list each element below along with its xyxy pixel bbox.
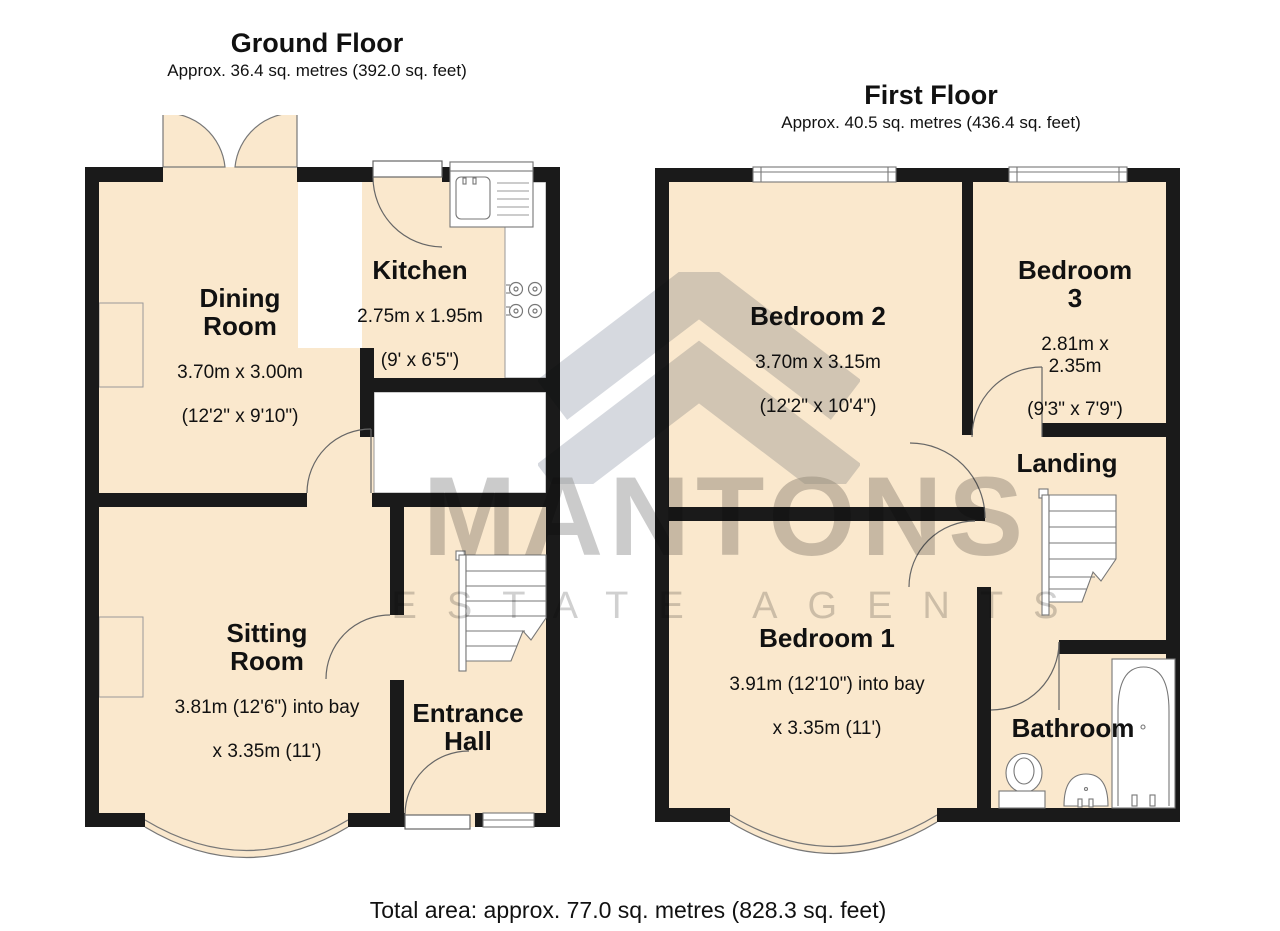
hall-window [483, 813, 534, 827]
room-name: Bedroom 1 [729, 625, 924, 653]
room-label-kitchen: Kitchen 2.75m x 1.95m (9' x 6'5") [357, 257, 483, 394]
room-dim-imperial: (9' x 6'5") [357, 350, 483, 372]
room-name: Bedroom 2 [750, 303, 886, 331]
room-label-bedroom1: Bedroom 1 3.91m (12'10") into bay x 3.35… [729, 625, 924, 762]
room-dim-metric: 3.81m (12'6") into bay [175, 697, 360, 719]
room-dim-metric: 2.81m x 2.35m [1018, 334, 1132, 378]
room-label-entrance-hall: Entrance Hall [412, 700, 523, 755]
ground-floor-plan: Dining Room 3.70m x 3.00m (12'2" x 9'10"… [85, 115, 560, 890]
room-name: Dining Room [177, 285, 303, 340]
room-name: Bedroom 3 [1018, 257, 1132, 312]
room-label-dining-room: Dining Room 3.70m x 3.00m (12'2" x 9'10"… [177, 285, 303, 449]
french-doors [163, 115, 297, 167]
first-floor-plan: Bedroom 2 3.70m x 3.15m (12'2" x 10'4") … [655, 165, 1180, 880]
first-floor-title: First Floor [864, 80, 998, 111]
room-dim-metric: 3.91m (12'10") into bay [729, 674, 924, 696]
room-dims: 2.75m x 1.95m (9' x 6'5") [357, 285, 483, 394]
room-dim-imperial: (12'2" x 10'4") [750, 396, 886, 418]
room-name: Kitchen [357, 257, 483, 285]
room-dim-metric: 3.70m x 3.15m [750, 352, 886, 374]
first-floor-area: Approx. 40.5 sq. metres (436.4 sq. feet) [781, 113, 1081, 133]
room-name: Sitting Room [175, 620, 360, 675]
room-name: Landing [1016, 450, 1117, 478]
room-dim-imperial: x 3.35m (11') [175, 741, 360, 763]
room-label-landing: Landing [1016, 450, 1117, 478]
floorplan-page: Ground Floor Approx. 36.4 sq. metres (39… [0, 0, 1280, 931]
room-dims: 3.81m (12'6") into bay x 3.35m (11') [175, 675, 360, 784]
room-dim-imperial: (12'2" x 9'10") [177, 406, 303, 428]
kitchen-sink [450, 162, 533, 227]
room-dim-imperial: x 3.35m (11') [729, 718, 924, 740]
room-dims: 3.70m x 3.15m (12'2" x 10'4") [750, 331, 886, 440]
room-dims: 3.70m x 3.00m (12'2" x 9'10") [177, 340, 303, 449]
total-area-text: Total area: approx. 77.0 sq. metres (828… [370, 897, 887, 924]
room-label-bedroom3: Bedroom 3 2.81m x 2.35m (9'3" x 7'9") [1018, 257, 1132, 443]
room-dim-metric: 2.75m x 1.95m [357, 306, 483, 328]
room-dim-metric: 3.70m x 3.00m [177, 362, 303, 384]
ground-floor-title: Ground Floor [231, 28, 403, 59]
ground-floor-area: Approx. 36.4 sq. metres (392.0 sq. feet) [167, 61, 467, 81]
room-label-bathroom: Bathroom [1012, 715, 1135, 743]
room-name: Entrance Hall [412, 700, 523, 755]
room-label-bedroom2: Bedroom 2 3.70m x 3.15m (12'2" x 10'4") [750, 303, 886, 440]
room-label-sitting-room: Sitting Room 3.81m (12'6") into bay x 3.… [175, 620, 360, 784]
room-name: Bathroom [1012, 715, 1135, 743]
room-dim-imperial: (9'3" x 7'9") [1018, 399, 1132, 421]
under-kitchen-void [374, 392, 546, 493]
room-dims: 3.91m (12'10") into bay x 3.35m (11') [729, 653, 924, 762]
room-dims: 2.81m x 2.35m (9'3" x 7'9") [1018, 312, 1132, 443]
